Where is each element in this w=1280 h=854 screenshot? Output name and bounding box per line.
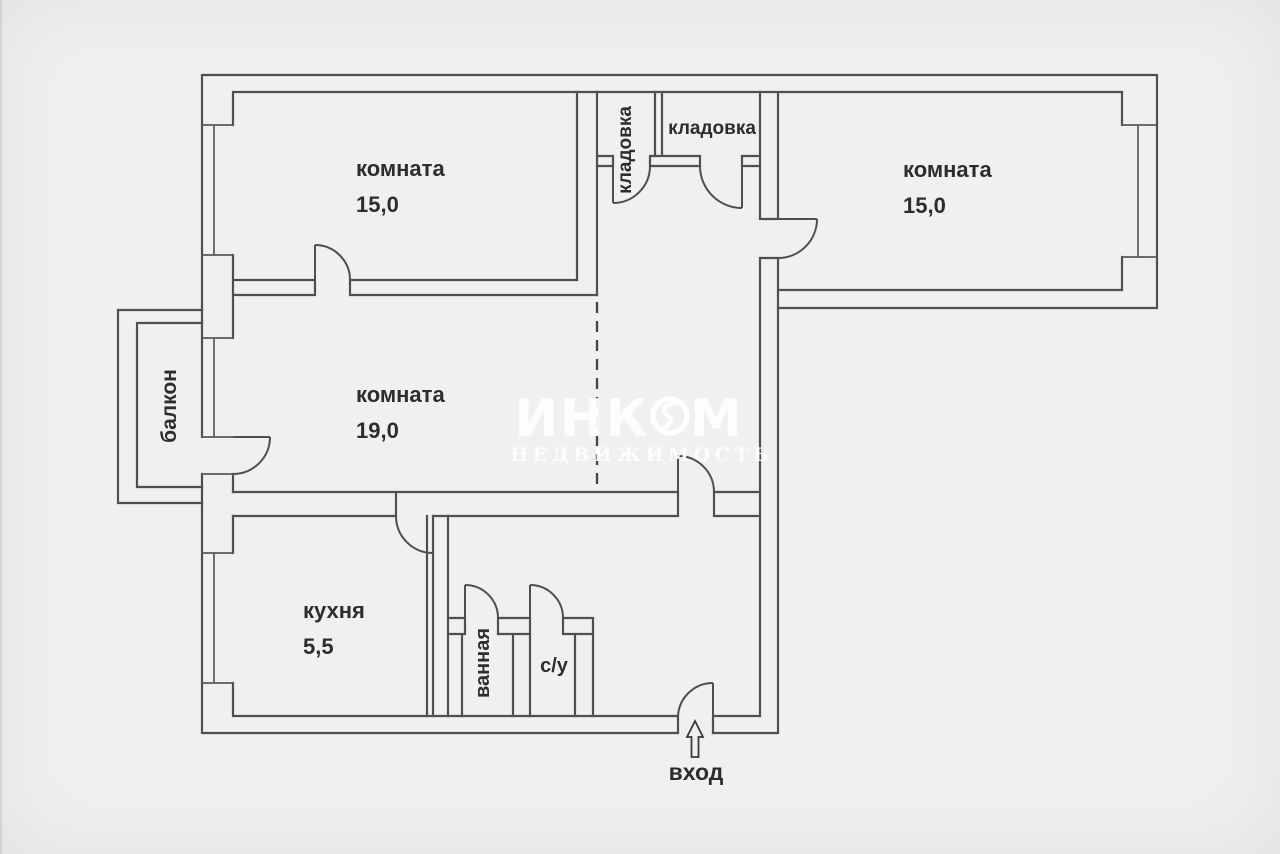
window-kitchen xyxy=(202,553,233,683)
room-top-right: комната 15,0 xyxy=(903,157,992,218)
spine-wall xyxy=(233,492,760,516)
wc-label: с/у xyxy=(540,655,569,677)
window-balcony-block xyxy=(202,338,233,474)
kitchen: кухня 5,5 xyxy=(303,598,365,659)
watermark-brand-right: М xyxy=(690,389,744,449)
partition-room1-hall xyxy=(577,92,597,295)
entrance-arrow-icon xyxy=(687,721,703,757)
door-entrance xyxy=(678,683,713,716)
storage-right-label: кладовка xyxy=(668,118,756,139)
bathroom-label: ванная xyxy=(472,628,494,698)
door-room1 xyxy=(315,245,350,280)
inner-wall-lines xyxy=(233,92,1122,733)
door-wc xyxy=(530,585,563,618)
floor-plan-page: ИНК М НЕДВИЖИМОСТЬ комната 15,0 комната … xyxy=(0,0,1280,854)
window-room2 xyxy=(1122,125,1157,257)
room-top-left-area: 15,0 xyxy=(356,192,399,217)
storage-left-label: кладовка xyxy=(615,106,636,194)
room-top-left-label: комната xyxy=(356,156,445,181)
room-middle-label: комната xyxy=(356,382,445,407)
watermark-brand-left: ИНК xyxy=(514,389,650,449)
bathroom-wc-walls xyxy=(448,516,593,716)
door-balcony xyxy=(233,437,270,474)
room-top-left: комната 15,0 xyxy=(356,156,445,217)
room-top-right-area: 15,0 xyxy=(903,193,946,218)
kitchen-area: 5,5 xyxy=(303,634,334,659)
watermark-subtitle: НЕДВИЖИМОСТЬ xyxy=(510,445,773,466)
door-room2 xyxy=(778,219,817,258)
inkom-logo-bolt-icon xyxy=(660,403,676,429)
kitchen-east-wall xyxy=(427,516,433,716)
door-storage-right xyxy=(700,166,742,208)
partition-room1-room3 xyxy=(233,280,597,295)
room-top-right-label: комната xyxy=(903,157,992,182)
room-middle: комната 19,0 xyxy=(356,382,445,443)
room-middle-area: 19,0 xyxy=(356,418,399,443)
kitchen-label: кухня xyxy=(303,598,365,623)
balcony-label: балкон xyxy=(158,369,181,443)
watermark: ИНК М НЕДВИЖИМОСТЬ xyxy=(510,389,773,466)
door-bathroom xyxy=(465,585,498,618)
floor-plan-drawing: ИНК М НЕДВИЖИМОСТЬ комната 15,0 комната … xyxy=(0,0,1280,854)
window-room1 xyxy=(202,125,233,255)
entrance-label: вход xyxy=(669,759,724,785)
